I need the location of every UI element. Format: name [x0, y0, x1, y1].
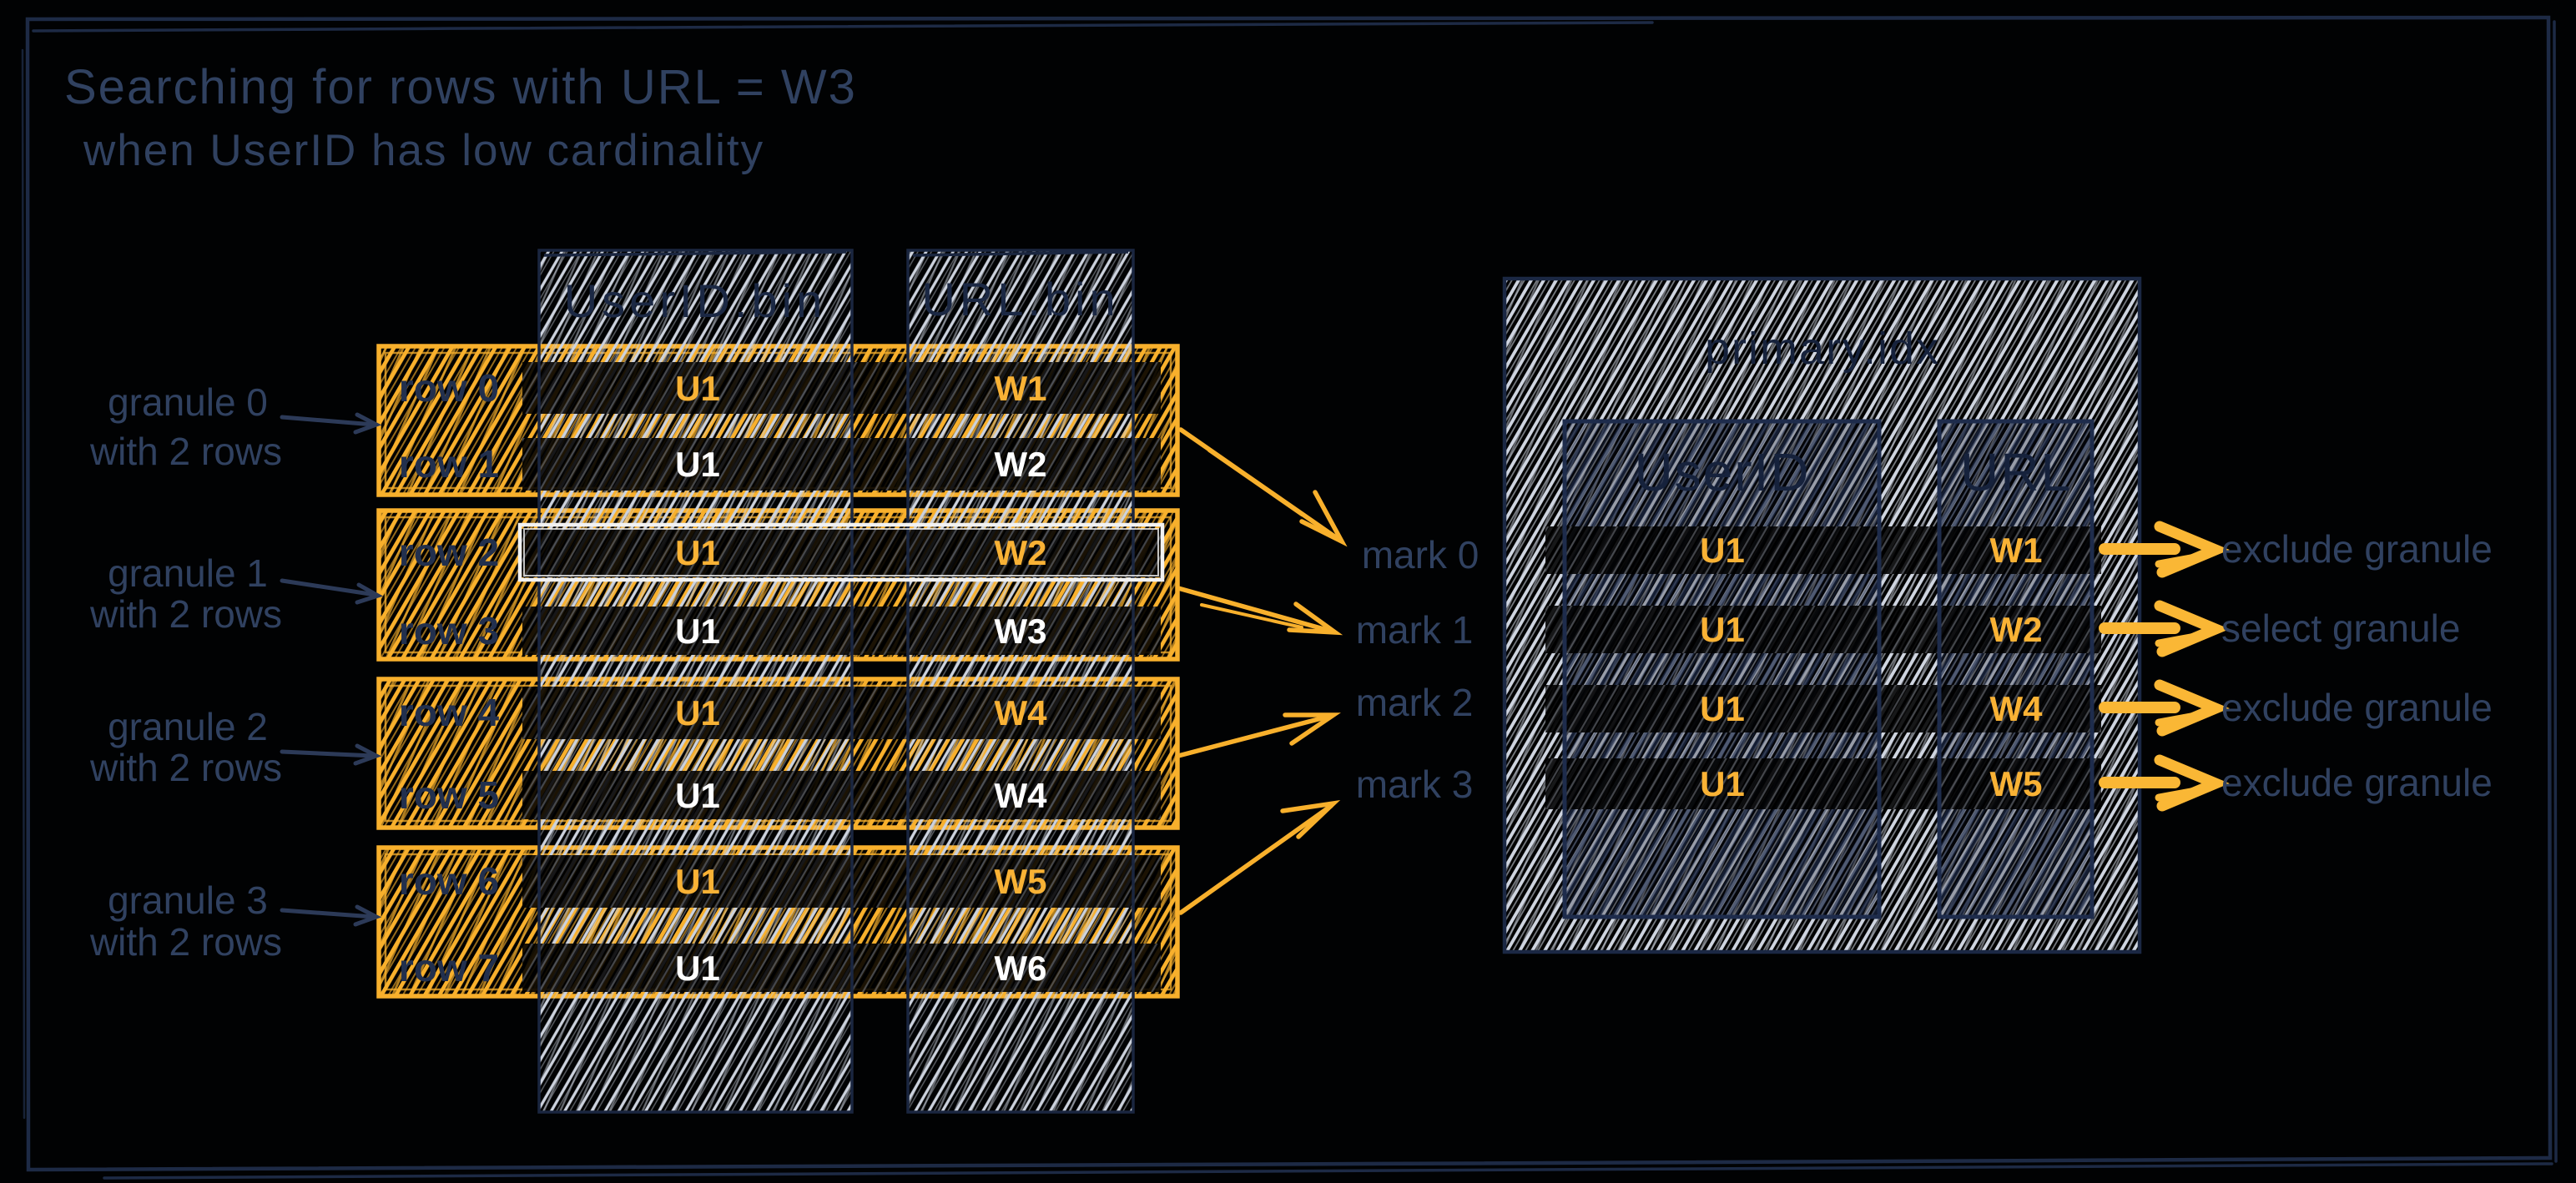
svg-text:U1: U1 [1700, 689, 1745, 728]
svg-text:U1: U1 [675, 612, 720, 651]
svg-text:U1: U1 [675, 862, 720, 901]
svg-text:W3: W3 [995, 612, 1047, 651]
svg-text:with 2 rows: with 2 rows [89, 746, 282, 789]
svg-text:U1: U1 [675, 776, 720, 815]
svg-text:UserID.bin: UserID.bin [564, 274, 827, 327]
svg-text:mark 1: mark 1 [1356, 608, 1474, 652]
svg-text:when UserID has low cardinalit: when UserID has low cardinality [83, 126, 764, 175]
svg-text:U1: U1 [1700, 531, 1745, 570]
svg-text:W2: W2 [995, 533, 1047, 572]
svg-text:W4: W4 [995, 693, 1048, 732]
svg-text:W5: W5 [995, 862, 1047, 901]
svg-text:URL: URL [1960, 442, 2072, 502]
svg-text:row 0: row 0 [399, 366, 499, 410]
svg-text:W6: W6 [995, 949, 1047, 988]
svg-text:W4: W4 [1990, 689, 2044, 728]
svg-text:granule 2: granule 2 [108, 705, 268, 748]
svg-text:granule 3: granule 3 [108, 878, 268, 922]
svg-text:U1: U1 [1700, 610, 1745, 649]
svg-text:W2: W2 [995, 445, 1047, 484]
svg-text:row 2: row 2 [399, 531, 499, 574]
svg-text:W1: W1 [1990, 531, 2043, 570]
svg-text:with 2 rows: with 2 rows [89, 592, 282, 636]
svg-text:U1: U1 [675, 533, 720, 572]
svg-text:U1: U1 [1700, 764, 1745, 803]
svg-text:row 6: row 6 [399, 859, 499, 903]
svg-text:U1: U1 [675, 445, 720, 484]
svg-text:row 4: row 4 [399, 691, 500, 734]
svg-text:URL.bin: URL.bin [921, 273, 1119, 325]
svg-text:select granule: select granule [2221, 607, 2460, 650]
svg-text:exclude granule: exclude granule [2221, 686, 2493, 729]
svg-text:U1: U1 [675, 693, 720, 732]
svg-text:UserID: UserID [1634, 442, 1810, 502]
svg-text:row 1: row 1 [399, 442, 499, 486]
svg-text:W4: W4 [995, 776, 1048, 815]
svg-text:row 7: row 7 [399, 946, 499, 989]
svg-text:W2: W2 [1990, 610, 2043, 649]
svg-text:W1: W1 [995, 369, 1047, 408]
svg-text:U1: U1 [675, 949, 720, 988]
svg-text:primary.idx: primary.idx [1705, 324, 1940, 374]
svg-text:mark 0: mark 0 [1362, 533, 1480, 576]
svg-text:granule 1: granule 1 [108, 551, 268, 595]
svg-text:granule 0: granule 0 [108, 380, 268, 424]
svg-text:with 2 rows: with 2 rows [89, 920, 282, 964]
svg-text:mark 3: mark 3 [1356, 763, 1474, 806]
svg-text:Searching for rows with URL =: Searching for rows with URL = W3 [64, 60, 857, 114]
svg-text:U1: U1 [675, 369, 720, 408]
svg-text:with 2 rows: with 2 rows [89, 430, 282, 473]
svg-text:mark 2: mark 2 [1356, 681, 1474, 724]
svg-text:row 3: row 3 [399, 609, 499, 652]
svg-text:exclude granule: exclude granule [2221, 761, 2493, 804]
svg-text:exclude granule: exclude granule [2221, 527, 2493, 571]
svg-text:row 5: row 5 [399, 773, 499, 817]
svg-text:W5: W5 [1990, 764, 2043, 803]
